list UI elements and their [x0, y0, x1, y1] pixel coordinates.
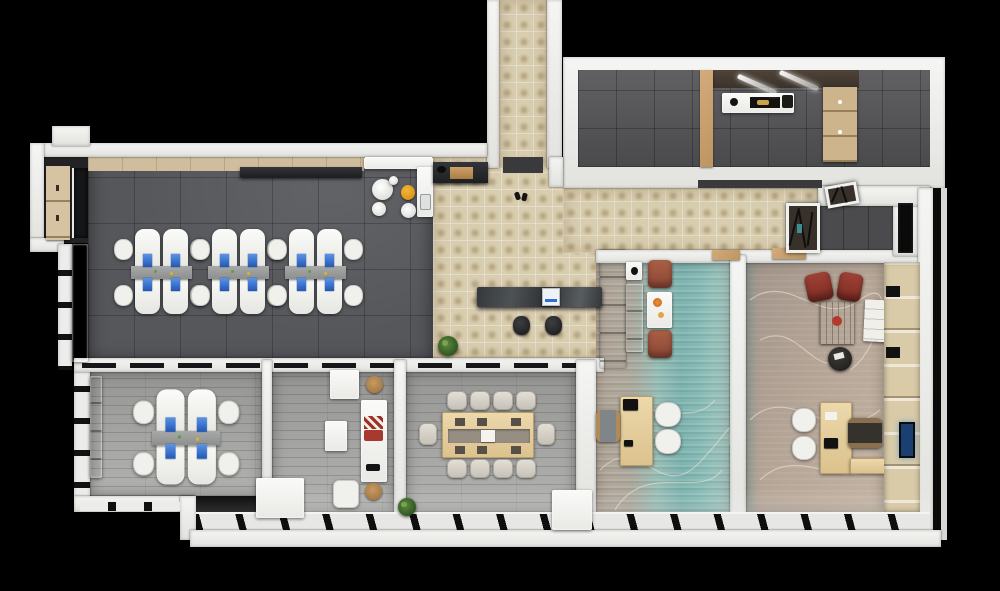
task-chair [268, 239, 287, 260]
meeting-chair [470, 391, 490, 410]
open-office-credenza [240, 167, 362, 177]
entry-corridor-floor [499, 0, 547, 168]
screen-deco-dot [154, 270, 157, 273]
desk-cluster [133, 386, 239, 489]
lounge-wood-stool [366, 376, 383, 393]
top-wall [40, 143, 487, 157]
office-floor-plan-render [0, 0, 1000, 591]
wing-dresser [823, 87, 857, 162]
waiting-sofa [626, 284, 643, 352]
niche-teal-accent [797, 224, 802, 233]
team-office-window-slits [80, 502, 180, 511]
exec-tan-magazine-table [828, 347, 852, 371]
task-chair [344, 239, 363, 260]
lounge-utility-block [256, 478, 304, 518]
wardrobe-handle [56, 215, 59, 221]
meeting-chair [493, 391, 513, 410]
waiting-armchair [648, 260, 672, 288]
meeting-end-chair [537, 423, 555, 445]
task-chair [114, 285, 133, 306]
monitor-blue [197, 417, 207, 432]
black-storage-closet [898, 203, 913, 253]
desk-papers [825, 412, 837, 420]
interior-glass-band [82, 363, 596, 368]
closet-dark-cabinet [72, 168, 88, 238]
exec-teal-phone [624, 440, 633, 446]
sofa-red-pillow [364, 430, 383, 441]
screen-deco-dot [170, 272, 173, 275]
meeting-credenza [552, 490, 592, 530]
task-chair [133, 452, 154, 476]
privacy-screen [152, 431, 220, 446]
reception-monitor [542, 288, 560, 306]
waiting-art-table [647, 292, 672, 328]
entry-door-mat [503, 157, 543, 173]
kitchenette-stool [372, 202, 386, 216]
table-vent [455, 418, 465, 426]
monitor-blue [325, 278, 334, 291]
waiting-armchair [648, 330, 672, 358]
table-vent [511, 446, 521, 454]
meeting-chair [447, 391, 467, 410]
lounge-armchair [333, 480, 359, 508]
office-sideboard [72, 244, 88, 362]
privacy-screen [131, 266, 192, 279]
niche-wall-band [818, 205, 893, 253]
meeting-chair [447, 459, 467, 478]
exec-teal-guest-chair [655, 402, 681, 427]
wing-dresser-handle [838, 100, 842, 104]
exec-tan-lounge-chair [803, 271, 834, 304]
privacy-screen [285, 266, 346, 279]
monitor-blue [248, 254, 257, 267]
wing-wall-shadow [698, 180, 822, 188]
corridor-floor [563, 188, 818, 253]
meeting-table [442, 412, 534, 458]
closet-wardrobe [46, 166, 70, 240]
entry-corridor-left-wall [487, 0, 499, 168]
coffee-table-red-bowl [832, 316, 842, 326]
screen-deco-dot [308, 270, 311, 273]
desk-cluster [268, 226, 363, 318]
lounge-ottoman [325, 421, 347, 451]
wall-unit-black-box [886, 347, 900, 358]
wing-counter-decor [782, 95, 793, 108]
reception-plant [438, 336, 458, 356]
screen-deco-dot [247, 272, 250, 275]
kitchenette-stool [401, 203, 416, 218]
monitor-blue [165, 444, 175, 459]
wall-unit-black-box [886, 286, 900, 297]
meeting-chair [516, 459, 536, 478]
bottom-outer-wall [190, 530, 941, 547]
meeting-chair [470, 459, 490, 478]
meeting-chair [493, 459, 513, 478]
reception-monitor-screen [545, 299, 557, 302]
task-chair [344, 285, 363, 306]
orange-artwork [658, 312, 664, 318]
meeting-table-center-item [481, 430, 495, 442]
exec-tan-desk-return [850, 458, 886, 474]
reception-stool [545, 316, 562, 335]
meeting-chair [516, 391, 536, 410]
exec-teal-door-lintel [712, 250, 740, 260]
left-window-wall [58, 244, 72, 370]
task-chair [218, 401, 239, 425]
monitor-blue [220, 278, 229, 291]
task-chair [191, 285, 210, 306]
exec-teal-guest-chair [655, 429, 681, 454]
monitor-blue [171, 278, 180, 291]
right-outer-wall [918, 188, 933, 540]
entry-console-black-bowl [437, 166, 446, 173]
kitchenette-sink [420, 194, 431, 210]
monitor-blue [171, 254, 180, 267]
exec-tan-monitor [824, 438, 838, 448]
corridor-bottom-wall [596, 250, 932, 263]
wing-dresser-handle [838, 130, 842, 134]
meeting-end-chair [419, 423, 437, 445]
sofa-black-item [366, 464, 380, 471]
right-facade-edge [941, 188, 947, 540]
exec-tan-lounge-chair [836, 271, 864, 303]
monitor-blue [248, 278, 257, 291]
reception-stool [513, 316, 530, 335]
screen-deco-dot [178, 435, 181, 438]
monitor-blue [197, 444, 207, 459]
task-chair [114, 239, 133, 260]
screen-deco-dot [324, 272, 327, 275]
screen-deco-dot [196, 438, 199, 441]
entry-wall-stub [549, 157, 563, 187]
table-vent [477, 446, 487, 454]
lounge-coffee-table [330, 370, 359, 399]
table-vent [477, 418, 487, 426]
monitor-blue [297, 254, 306, 267]
team-office-cabinets [90, 376, 102, 478]
exec-teal-monitor [623, 399, 638, 410]
wing-partition [700, 70, 713, 167]
top-left-step [52, 126, 90, 146]
entry-corridor-right-wall [547, 0, 562, 168]
monitor-blue [325, 254, 334, 267]
orange-artwork [653, 298, 662, 307]
exec-tan-wall-unit [884, 262, 920, 512]
exec-tan-guest-chair [792, 436, 816, 460]
task-chair [218, 452, 239, 476]
kitchenette-plate [389, 176, 398, 185]
reception-desk [477, 287, 602, 307]
privacy-screen [208, 266, 269, 279]
table-lamp [631, 267, 638, 275]
monitor-blue [165, 417, 175, 432]
exec-tan-guest-chair [792, 408, 816, 432]
monitor-blue [297, 278, 306, 291]
lounge-wood-stool [365, 483, 382, 500]
entry-console-wood-box [450, 167, 473, 179]
monitor-blue [220, 254, 229, 267]
wardrobe-handle [56, 185, 59, 191]
task-chair [268, 285, 287, 306]
left-wall-upper [30, 143, 44, 250]
task-chair [133, 401, 154, 425]
left-window-wall-lower [74, 360, 90, 500]
screen-deco-dot [231, 270, 234, 273]
exec-teal-chair [596, 410, 620, 442]
exec-tan-chair [848, 418, 882, 448]
waiting-cabinet-wall [600, 250, 626, 368]
sofa-checker-pillow [364, 416, 383, 429]
task-chair [191, 239, 210, 260]
monitor-blue [143, 254, 152, 267]
meeting-corner-plant [398, 498, 416, 516]
wing-counter-black-item [730, 98, 738, 106]
kitchenette-yellow-stool [401, 185, 415, 200]
exec-divider-wall [730, 255, 746, 532]
monitor-blue [143, 278, 152, 291]
table-vent [455, 446, 465, 454]
table-vent [511, 418, 521, 426]
wall-unit-tv [899, 422, 915, 458]
wing-tray-gold-item [757, 100, 769, 105]
